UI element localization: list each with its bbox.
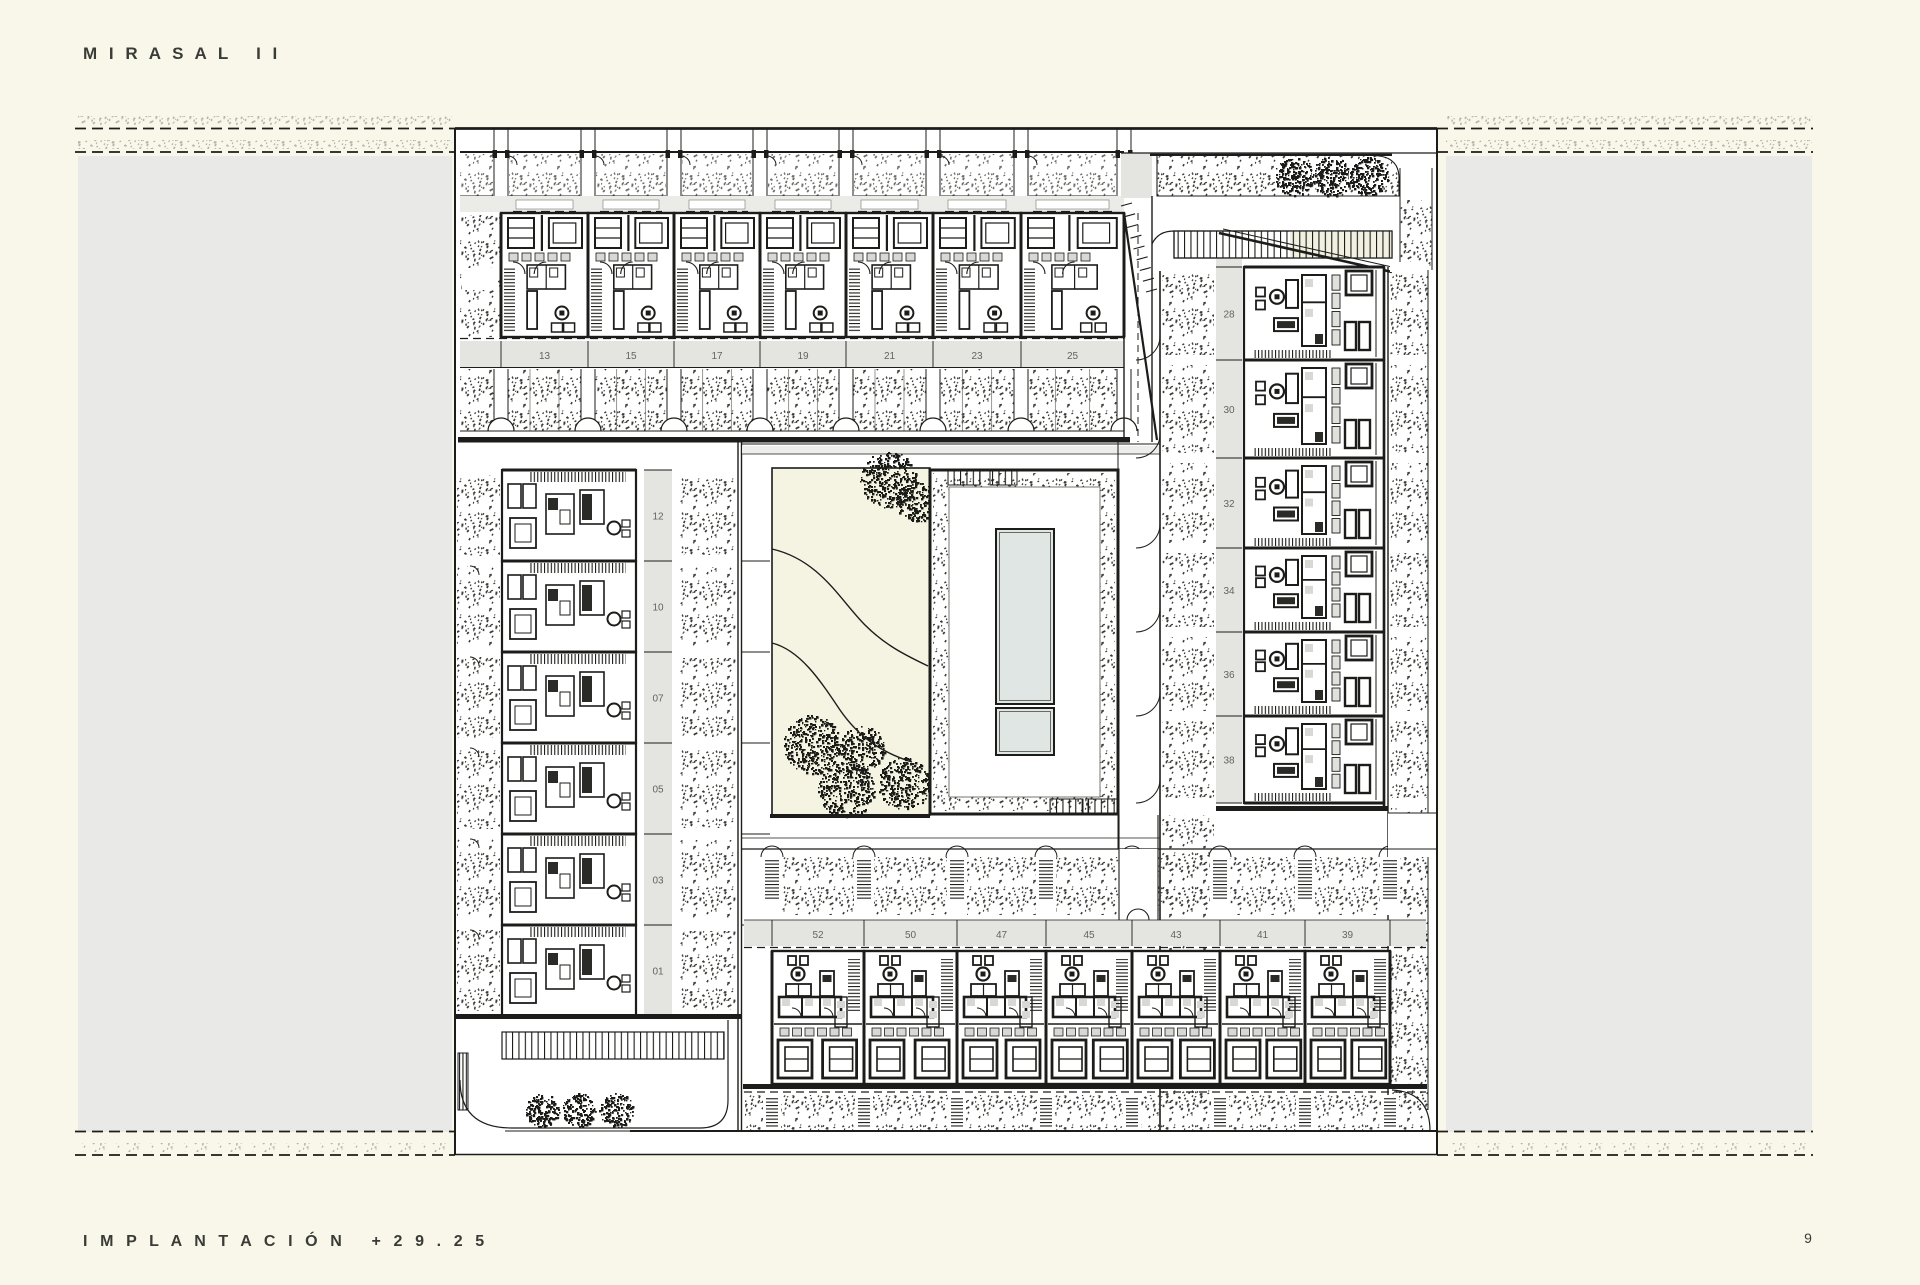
svg-text:52: 52 [812,930,824,941]
svg-text:10: 10 [652,603,664,614]
svg-text:47: 47 [996,930,1008,941]
svg-text:34: 34 [1223,586,1235,597]
svg-text:41: 41 [1257,930,1269,941]
svg-text:01: 01 [652,967,664,978]
svg-text:M I R A S A L I I: M I R A S A L I I [83,44,281,63]
svg-text:28: 28 [1223,310,1235,321]
svg-text:12: 12 [652,512,664,523]
svg-text:36: 36 [1223,670,1235,681]
svg-text:39: 39 [1342,930,1354,941]
svg-text:07: 07 [652,694,664,705]
svg-text:19: 19 [797,351,809,362]
svg-text:43: 43 [1170,930,1182,941]
svg-text:05: 05 [652,785,664,796]
svg-text:03: 03 [652,876,664,887]
svg-text:25: 25 [1067,351,1079,362]
svg-text:45: 45 [1083,930,1095,941]
svg-text:38: 38 [1223,756,1235,767]
svg-text:17: 17 [711,351,723,362]
svg-text:9: 9 [1804,1230,1812,1246]
svg-text:23: 23 [971,351,983,362]
svg-text:21: 21 [884,351,896,362]
svg-text:15: 15 [625,351,637,362]
svg-text:50: 50 [905,930,917,941]
svg-text:30: 30 [1223,405,1235,416]
svg-text:13: 13 [539,351,551,362]
svg-text:32: 32 [1223,499,1235,510]
svg-text:I M P L A N T A C I Ó N + 2: I M P L A N T A C I Ó N + 2 9 . 2 5 [83,1231,488,1250]
